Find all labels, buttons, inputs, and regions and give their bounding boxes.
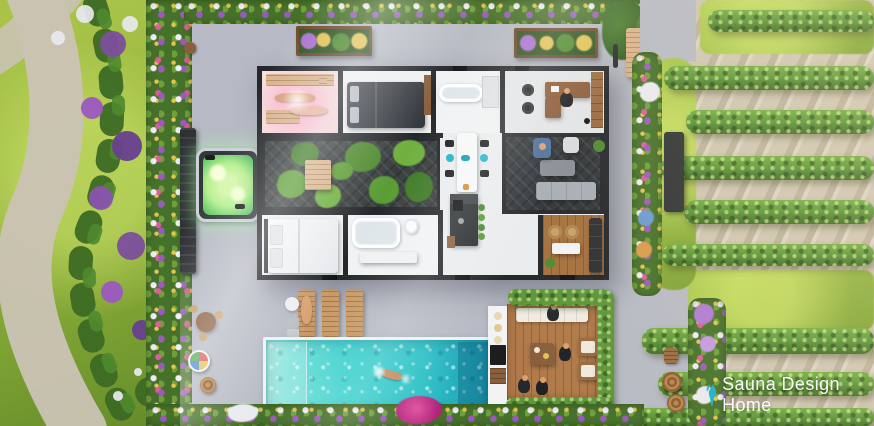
plate — [494, 324, 502, 332]
bed-dark — [347, 82, 425, 128]
sauna-stool — [319, 76, 327, 84]
floor-lamp — [584, 118, 590, 124]
hedge-row — [708, 10, 874, 32]
dining-chair — [445, 170, 454, 177]
barrel — [200, 377, 216, 393]
paper — [551, 86, 559, 92]
house — [257, 66, 609, 280]
door-gap — [515, 66, 529, 71]
door-gap — [453, 66, 467, 71]
pool-steps — [268, 342, 307, 405]
round-table — [196, 312, 216, 332]
sun-lounger — [346, 290, 363, 337]
deck-hedge-top — [508, 289, 610, 306]
wall — [431, 71, 436, 133]
dining-chair — [480, 140, 489, 147]
cushion — [581, 341, 595, 353]
plate — [494, 312, 502, 320]
sauna-steam-logo-icon — [704, 382, 718, 408]
bathtub — [439, 84, 483, 102]
deck-armchair — [578, 362, 598, 380]
barrel — [662, 372, 682, 392]
plate — [534, 347, 540, 353]
toilet — [404, 219, 418, 234]
parasol-white — [285, 297, 299, 311]
herb-pot — [478, 233, 485, 240]
stacked-kegs — [664, 348, 678, 364]
person-head — [539, 143, 546, 150]
wall — [538, 215, 543, 275]
bathroom-vanity — [360, 252, 417, 263]
person-head — [522, 375, 528, 381]
armchair-blue — [533, 138, 551, 158]
dining-chair — [445, 140, 454, 147]
teal-stool — [480, 154, 488, 162]
wall — [438, 215, 443, 275]
parasol — [188, 350, 210, 372]
stool — [190, 305, 198, 313]
herb-pot — [478, 224, 485, 231]
teal-stool — [446, 154, 454, 162]
hot-tub-water — [203, 155, 253, 215]
deck-armchair — [578, 338, 598, 356]
garden-path — [24, 0, 80, 426]
sofa-dark — [589, 218, 602, 273]
bathtub-inner — [443, 88, 479, 98]
person-sunbathing — [301, 296, 312, 324]
shower — [482, 76, 499, 108]
hot-tub-headrest — [235, 204, 245, 209]
water-splash — [374, 367, 384, 377]
hedge-row — [684, 200, 874, 224]
sauna-light-glow — [282, 86, 312, 114]
wicker-chair — [565, 225, 579, 239]
plate — [494, 336, 502, 344]
hedge-row — [660, 156, 874, 180]
wall — [257, 210, 443, 215]
person-head — [540, 377, 546, 383]
bar-drawers — [490, 368, 506, 384]
watermark: Sauna Design Home — [704, 374, 874, 416]
dining-chair — [480, 170, 489, 177]
wall — [343, 215, 348, 275]
outdoor-deck — [507, 304, 599, 400]
duvet-fold — [298, 219, 300, 273]
bed-white — [268, 219, 338, 273]
potted-plant — [545, 258, 555, 268]
plate — [543, 353, 549, 359]
office-desk-return — [545, 98, 561, 118]
door-gap — [455, 275, 470, 280]
pool-deep-end — [458, 342, 490, 405]
privacy-fence — [180, 128, 196, 274]
coffee-table — [552, 243, 580, 254]
bathtub — [352, 218, 400, 248]
teal-bowl — [461, 155, 470, 161]
hot-tub-headrest — [205, 155, 215, 160]
person-office — [560, 92, 573, 107]
hot-tub — [196, 148, 260, 222]
stool — [199, 333, 207, 341]
pillow — [350, 107, 359, 123]
office-chair — [522, 84, 534, 96]
aerial-villa-render: Sauna Design Home — [0, 0, 874, 426]
bicycle — [613, 44, 618, 68]
door-gap — [560, 275, 575, 280]
barrel — [667, 394, 685, 412]
pillow — [270, 225, 283, 245]
island-wood-base — [447, 236, 455, 248]
ottoman — [540, 160, 575, 176]
sofa-gray — [536, 182, 596, 200]
person-head — [564, 88, 570, 94]
side-table — [287, 318, 299, 327]
wall — [500, 71, 505, 133]
stool — [215, 311, 223, 319]
hedge-row — [686, 110, 874, 134]
cushion — [581, 365, 595, 377]
top-flower-hedge — [184, 0, 656, 24]
pillow — [270, 248, 283, 268]
courtyard-pergola-bench — [305, 160, 331, 190]
cooktop — [453, 200, 463, 211]
office-chair — [522, 102, 534, 114]
wall — [257, 133, 443, 138]
person-head — [563, 343, 569, 349]
wicker-chair — [548, 225, 562, 239]
plant-pot — [184, 42, 196, 54]
deck-table — [530, 343, 554, 365]
watermark-text: Sauna Design Home — [722, 374, 874, 416]
potted-plant — [593, 140, 605, 152]
dark-planter — [664, 132, 684, 212]
wall — [338, 71, 343, 133]
herb-pot — [478, 204, 485, 211]
orange-dish — [463, 184, 469, 190]
planter-box-right — [514, 28, 598, 58]
pillow — [350, 86, 359, 102]
duvet-fold — [375, 82, 377, 128]
office-cabinet — [591, 72, 603, 128]
bathroom-vanity-wood — [424, 75, 431, 115]
sun-lounger — [322, 290, 339, 337]
outdoor-bar-counter — [488, 306, 508, 408]
herb-pot — [478, 214, 485, 221]
planter-box-left — [296, 26, 372, 56]
hedge-row — [662, 244, 874, 266]
deck-hedge-right — [597, 290, 614, 410]
grill — [490, 345, 506, 365]
water-splash — [402, 375, 410, 383]
bathtub-inner — [356, 222, 396, 244]
hedge-row — [664, 66, 874, 90]
sink — [458, 218, 464, 224]
door-gap — [322, 275, 337, 280]
armchair-white — [563, 137, 579, 153]
